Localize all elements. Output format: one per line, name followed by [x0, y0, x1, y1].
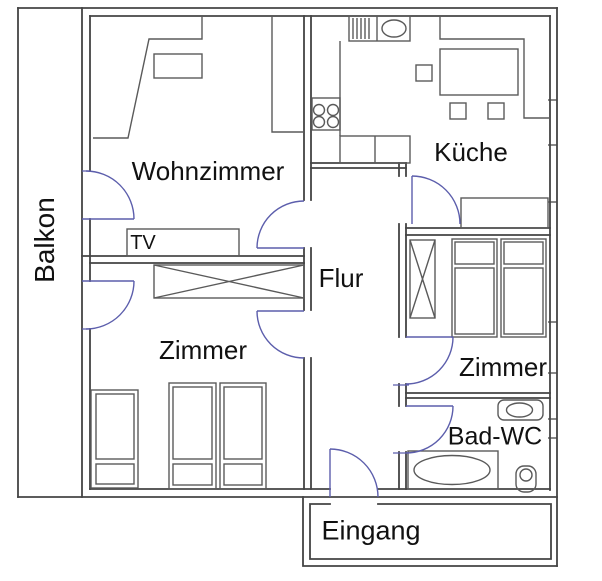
bed-frame [220, 383, 266, 489]
room-label-zimmer-links: Zimmer [159, 337, 247, 363]
tv-label: TV [130, 233, 156, 253]
door-arc [86, 281, 134, 329]
door-bath-hall [406, 406, 453, 453]
bed-foot [96, 464, 134, 484]
floorplan-drawing [0, 0, 602, 581]
wall-center-vertical [304, 16, 311, 489]
bed-frame [501, 239, 546, 337]
bed-pillow [455, 242, 494, 264]
sink-counter [349, 16, 410, 41]
toilet-bowl [520, 469, 532, 481]
kitchen-table [440, 49, 518, 95]
door-arc [86, 171, 134, 219]
bed-double-left-b [220, 383, 266, 489]
wardrobe-right-cross [410, 240, 435, 318]
door-arc [257, 201, 304, 248]
door-opening-marks [82, 171, 409, 453]
bed-double-right-b [501, 239, 546, 337]
door-arc [330, 449, 378, 497]
wall-hall-top [311, 163, 406, 168]
room-label-balkon: Balkon [31, 197, 59, 283]
room-label-zimmer-rechts: Zimmer [459, 354, 547, 380]
wall-living-bedroom [82, 256, 304, 263]
wall-hall-right [399, 163, 406, 489]
door-entrance [330, 449, 378, 497]
bed-frame [91, 390, 138, 488]
burner [314, 105, 325, 116]
burner [328, 105, 339, 116]
door-balcony-bedroom [82, 281, 134, 329]
bed-mattress [504, 268, 543, 334]
bed-pillow [504, 242, 543, 264]
bed-mattress [455, 268, 494, 334]
sink-basin [382, 20, 406, 37]
lower-counter [340, 136, 410, 163]
burner [328, 117, 339, 128]
sofa [93, 16, 202, 138]
tub-frame [408, 451, 498, 489]
door-arc [406, 406, 453, 453]
kitchen-furniture [312, 16, 550, 228]
tub-bowl [414, 456, 490, 485]
room-label-eingang: Eingang [321, 518, 420, 545]
bed-mattress [224, 387, 262, 459]
door-arc [406, 337, 453, 384]
bed-double-left-a [169, 383, 216, 489]
door-arc [412, 176, 460, 224]
chair [450, 103, 466, 119]
coffee-table [154, 54, 202, 78]
basin-bowl [507, 403, 533, 417]
room-label-flur: Flur [319, 265, 364, 291]
door-bedroomleft-hall [257, 311, 304, 358]
door-living-hall [257, 201, 304, 248]
living-room-furniture [93, 16, 304, 256]
floorplan-canvas: Balkon Wohnzimmer TV Küche Flur Zimmer Z… [0, 0, 602, 581]
bed-foot [224, 464, 262, 485]
room-label-kueche: Küche [434, 139, 508, 165]
sideboard [461, 198, 548, 228]
door-balcony-living [82, 171, 134, 219]
bed-frame [452, 239, 497, 337]
bed-double-right-a [452, 239, 497, 337]
door-kitchen [412, 176, 460, 224]
bathtub [408, 451, 498, 489]
kitchen-sink-unit [349, 16, 410, 41]
wall-bedroom-bath [406, 393, 550, 398]
bed-single [91, 390, 138, 488]
bedroom-left-furniture [91, 265, 304, 489]
chair [416, 65, 432, 81]
room-label-bad-wc: Bad-WC [448, 425, 542, 450]
wardrobe-left-cross [154, 265, 304, 298]
media-cabinet [272, 16, 304, 132]
burner [314, 117, 325, 128]
door-bedroomright-hall [406, 337, 453, 384]
bedroom-right-furniture [410, 239, 546, 337]
bed-foot [173, 464, 212, 485]
drainer-lines [353, 18, 369, 39]
chair [488, 103, 504, 119]
bed-frame [169, 383, 216, 489]
washbasin [498, 400, 543, 420]
room-label-wohnzimmer: Wohnzimmer [132, 158, 285, 184]
walls [18, 8, 557, 566]
wall-kitchen-bedroom [406, 228, 550, 235]
bed-mattress [96, 394, 134, 459]
door-arc [257, 311, 304, 358]
stove [312, 98, 340, 130]
bed-mattress [173, 387, 212, 459]
